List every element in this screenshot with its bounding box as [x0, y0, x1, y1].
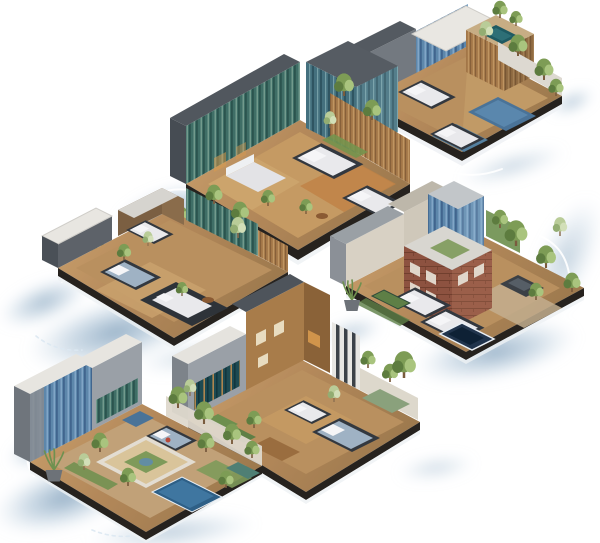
wall-end-cap	[330, 236, 346, 286]
timber-house-side	[304, 282, 330, 373]
wall-end-cap	[14, 386, 30, 462]
wall-end-cap	[170, 118, 186, 184]
isometric-architecture-illustration	[0, 0, 600, 543]
tree	[360, 351, 375, 368]
side-table	[202, 297, 214, 303]
scene-canvas	[0, 0, 600, 543]
side-table	[316, 213, 328, 219]
parterre-pond	[139, 458, 153, 466]
decorative-arc	[250, 502, 340, 513]
pilaster	[30, 387, 44, 462]
tree	[492, 1, 507, 18]
water-blob	[395, 450, 478, 487]
flower-pot	[166, 438, 171, 443]
